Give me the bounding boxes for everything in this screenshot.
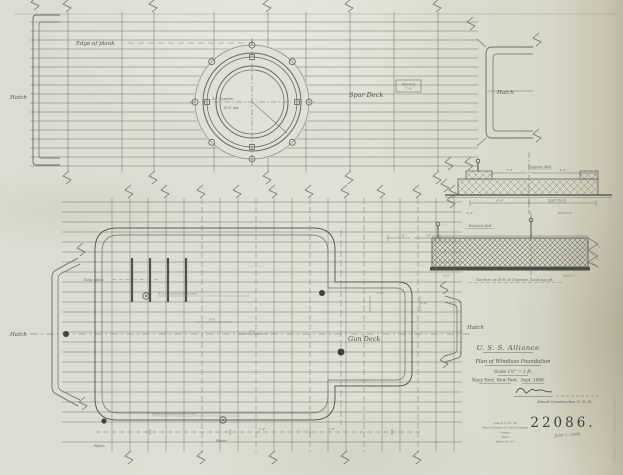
spar-deck-label: Spar Deck xyxy=(349,91,383,99)
navy-yard: Navy Yard, New York. xyxy=(471,378,518,383)
opening-size: 7'-0" xyxy=(405,87,413,91)
windlass-foundation-circles: 10" Capstan 4'-0" dia. xyxy=(190,40,315,166)
foundation-plate-note: Steel foundation plate 15 lbs xyxy=(152,412,196,416)
opening-note-box: Opening 7'-0" xyxy=(396,80,421,92)
capstan-bed-section-detail: 3'-9" 4'-6" Capstan Bed 9'-4" Spar Deck … xyxy=(441,152,612,215)
dim-4-6: 4'-6" xyxy=(558,168,567,172)
drawing-scale: Scale 1½" = 1 ft. xyxy=(494,369,532,375)
opening-note: Opening xyxy=(402,83,416,87)
drawing-date: Sept. 1896. xyxy=(521,378,545,383)
dim-2-0: 2'-0" xyxy=(420,301,428,305)
gun-deck-label: Gun Deck xyxy=(348,335,380,343)
foundation-bolts xyxy=(63,290,345,424)
hatch-label-bottom-right: Hatch xyxy=(466,325,484,331)
dim-1-4-ext: 1'-4" xyxy=(377,291,384,295)
spar-deck-plan: 10" Capstan 4'-0" dia. Edge of plank Spa… xyxy=(9,0,618,184)
circle-diameter-note: 4'-0" dia. xyxy=(223,106,239,110)
edge-of-plank-label: Edge of plank xyxy=(75,41,115,47)
hatch-label-top-right: Hatch xyxy=(496,90,514,96)
section-caption: Section at B-B of Capstan, looking aft. xyxy=(476,277,554,282)
hatch-label-bottom-left: Hatch xyxy=(9,332,27,338)
teak-4-6-note: Teak 4'-6" xyxy=(557,211,573,215)
angle-iron-note: 4" x 3" x 8.5 lb angle iron xyxy=(157,292,197,296)
gun-deck-left-hatch-channel xyxy=(52,243,87,410)
beam-label-1: Beam xyxy=(215,438,227,443)
blueprint-sheet: 10" Capstan 4'-0" dia. Edge of plank Spa… xyxy=(0,0,623,475)
file-stamp: Case P, F. No. 48 Plans of Bureau of Con… xyxy=(482,421,528,444)
gun-deck-right-hatch-channel xyxy=(440,281,461,368)
dim-3-9: 3'-9" xyxy=(506,168,514,172)
wooden-bed-label: Wooden Bed xyxy=(469,224,492,228)
windlass-platform-outline xyxy=(95,228,412,420)
gun-deck-plan: Gun Deck Hatch Hatch Edge plank 4" x 3" … xyxy=(9,185,484,464)
title-block: U. S. S. Alliance Plan of Windlass Found… xyxy=(471,344,601,438)
teak-4-1-note: Teak 4'-1" xyxy=(563,274,578,278)
stamp-line-1: Case P, F. No. 48 xyxy=(493,421,517,425)
ship-name: U. S. S. Alliance xyxy=(476,344,539,352)
dim-1-0-bottom: 1'-0" xyxy=(329,427,336,431)
capstan-bed-label: Capstan Bed xyxy=(529,165,552,169)
signature xyxy=(516,388,552,393)
edge-plank-note: Edge plank xyxy=(83,278,103,282)
stamp-line-2: Plans of Bureau of Constr. & Repair xyxy=(482,427,528,430)
dim-2-6: 2'-6" xyxy=(208,318,216,322)
dim-1-8: 1'-8" xyxy=(399,234,406,238)
stamp-line-3: · · Frames · · xyxy=(497,431,514,435)
spar-deck-left-hatch-channel xyxy=(33,15,60,165)
dim-3-0: 3'-0" xyxy=(249,330,256,334)
dim-10: 10" xyxy=(426,234,432,238)
stamp-line-4: · · Plans · · xyxy=(498,435,512,439)
beam-label-2: Beam xyxy=(93,443,105,448)
margin-pencil-note: Alliance — Windlass Foundation xyxy=(612,393,617,463)
stamp-line-5: · · Sheets No. 14 · · xyxy=(492,440,517,444)
drawing-canvas: 10" Capstan 4'-0" dia. Edge of plank Spa… xyxy=(0,0,623,475)
drawing-title: Plan of Windlass Foundation xyxy=(475,359,551,365)
dim-9-4: 9'-4" xyxy=(496,199,504,203)
gun-deck-dimension-lines xyxy=(196,235,440,334)
spar-deck-small-label: Spar Deck xyxy=(548,199,566,203)
hatch-label-top-left: Hatch xyxy=(9,95,27,101)
dim-4-2-lower: 4'-2" xyxy=(443,274,451,278)
filing-date-note: June 1, 1896. xyxy=(553,431,581,437)
signer-title: Naval Constructor, U. S. N. xyxy=(536,399,592,404)
dim-4-2-upper: 4'-2" xyxy=(465,211,474,215)
dim-1-4-bottom: 1'-4" xyxy=(259,427,266,431)
capstan-center-note: 10" Capstan xyxy=(212,97,233,101)
drawing-number: 22086. xyxy=(530,415,595,431)
